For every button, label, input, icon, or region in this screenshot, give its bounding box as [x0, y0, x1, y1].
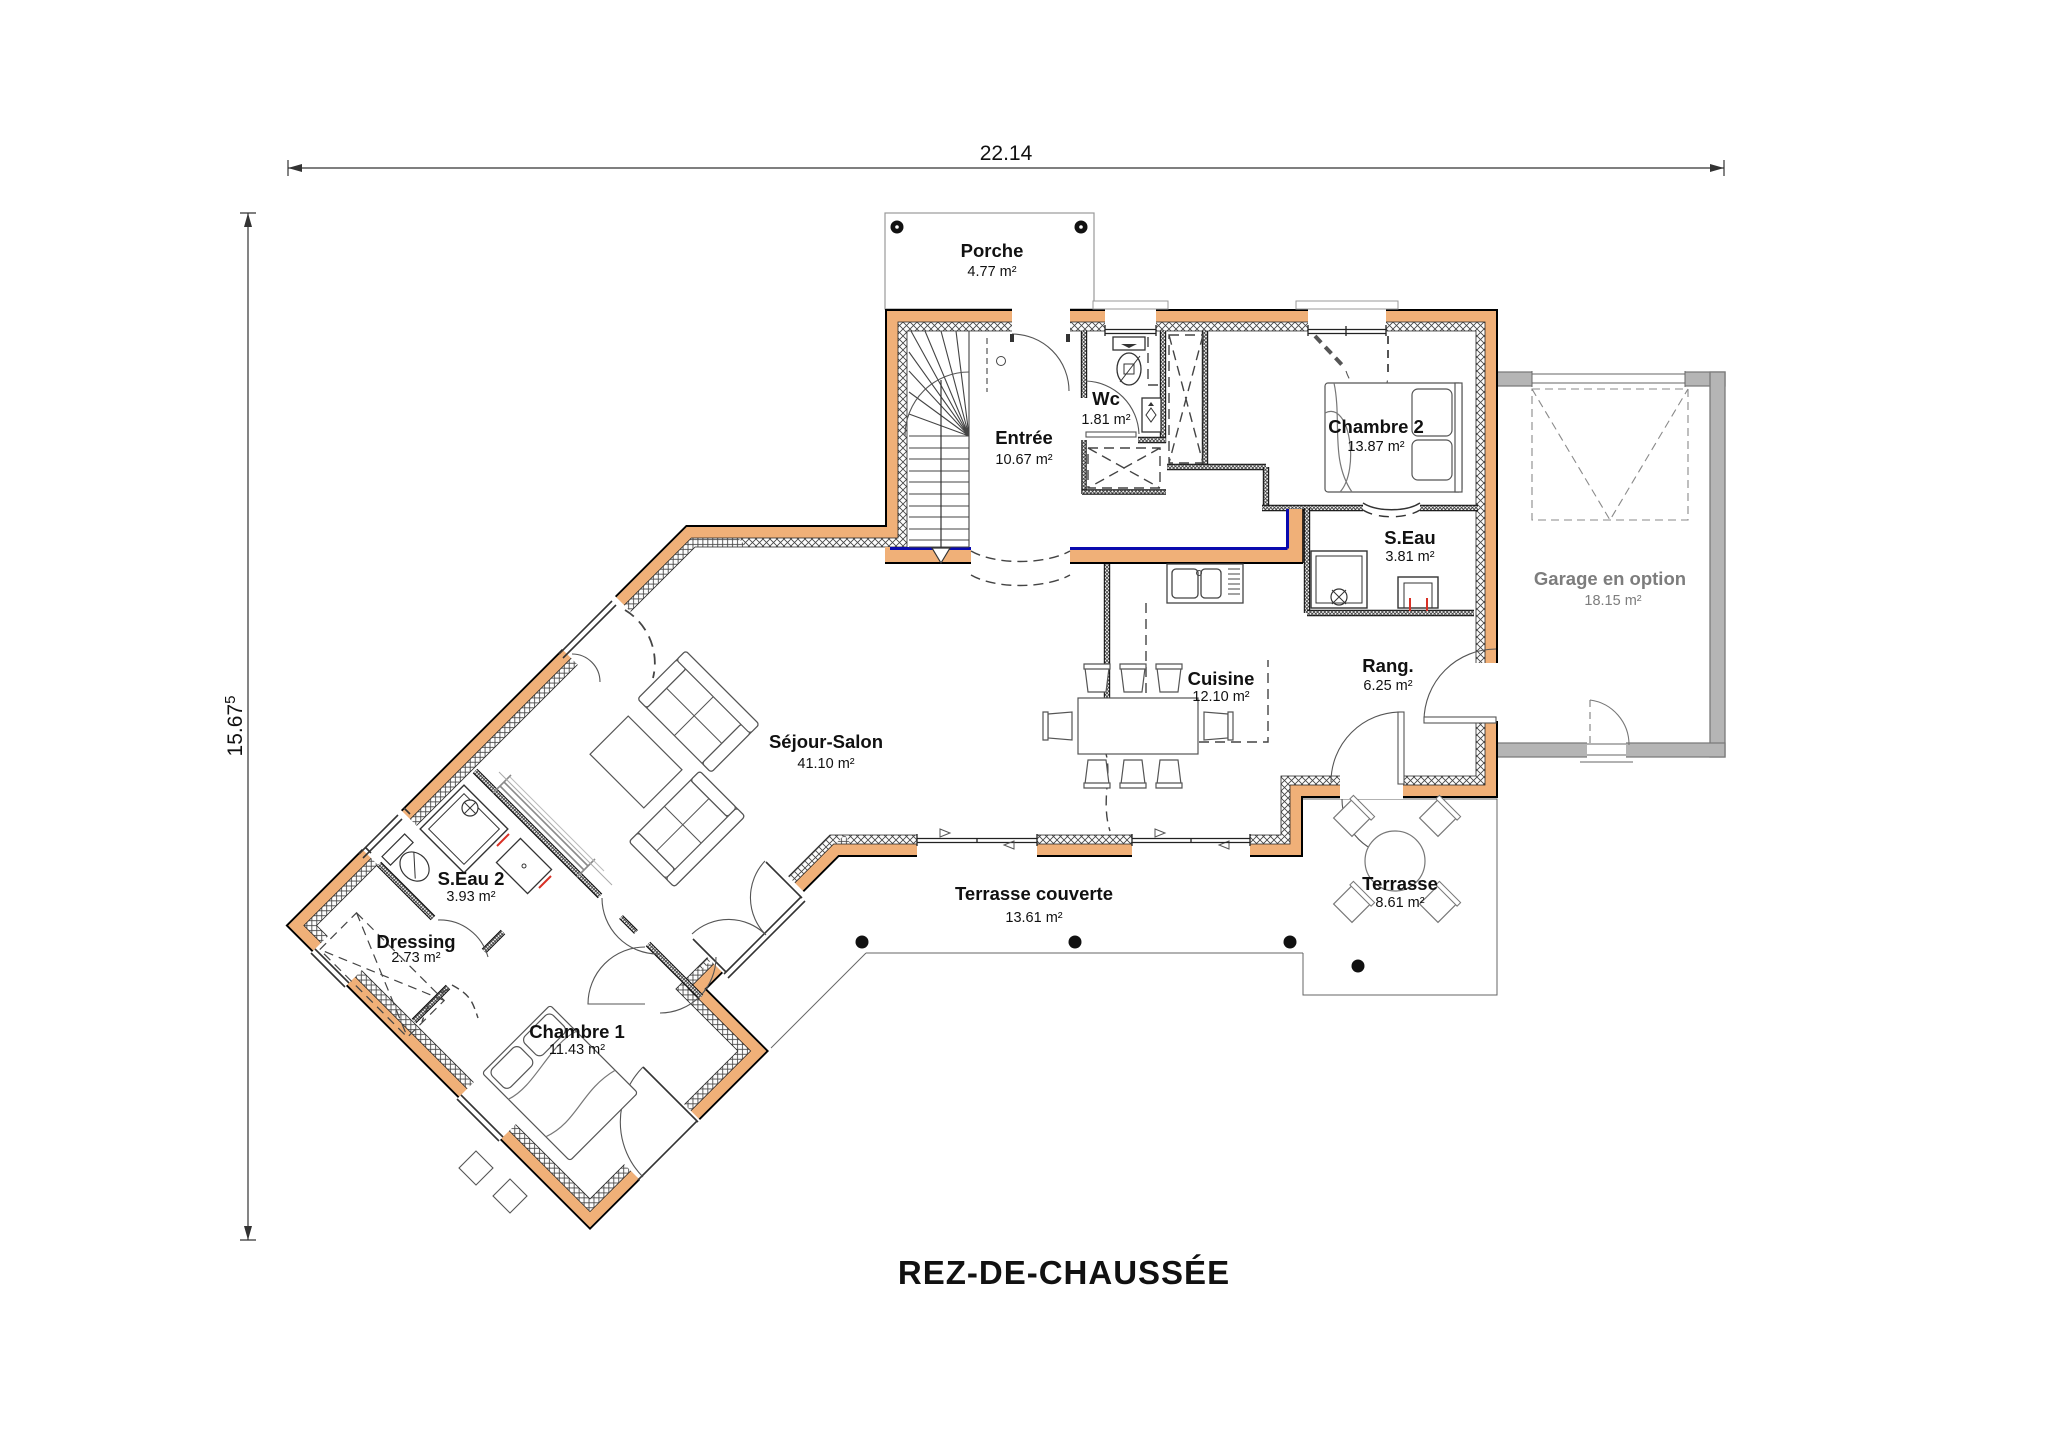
- svg-text:12.10 m²: 12.10 m²: [1192, 689, 1249, 705]
- svg-text:S.Eau: S.Eau: [1384, 527, 1435, 548]
- svg-text:13.87 m²: 13.87 m²: [1347, 439, 1404, 455]
- svg-text:Rang.: Rang.: [1362, 655, 1413, 676]
- svg-text:22.14: 22.14: [980, 142, 1033, 165]
- svg-text:Wc: Wc: [1092, 388, 1120, 409]
- svg-text:Entrée: Entrée: [995, 427, 1053, 448]
- svg-text:REZ-DE-CHAUSSÉE: REZ-DE-CHAUSSÉE: [898, 1254, 1230, 1291]
- svg-text:8.61 m²: 8.61 m²: [1375, 895, 1424, 911]
- svg-text:3.81 m²: 3.81 m²: [1385, 549, 1434, 565]
- svg-text:Cuisine: Cuisine: [1188, 668, 1255, 689]
- svg-text:11.43 m²: 11.43 m²: [549, 1042, 605, 1058]
- svg-text:Terrasse: Terrasse: [1362, 873, 1438, 894]
- svg-text:Chambre 2: Chambre 2: [1328, 416, 1424, 437]
- svg-text:6.25 m²: 6.25 m²: [1363, 678, 1412, 694]
- svg-text:3.93 m²: 3.93 m²: [446, 889, 495, 905]
- svg-text:2.73 m²: 2.73 m²: [391, 950, 440, 966]
- svg-text:Terrasse couverte: Terrasse couverte: [955, 883, 1113, 904]
- svg-text:15.675: 15.675: [222, 696, 247, 757]
- svg-text:1.81 m²: 1.81 m²: [1081, 412, 1130, 428]
- svg-text:Garage en option: Garage en option: [1534, 568, 1686, 589]
- svg-text:Chambre 1: Chambre 1: [529, 1021, 625, 1042]
- svg-text:S.Eau 2: S.Eau 2: [438, 868, 505, 889]
- svg-text:Porche: Porche: [961, 240, 1024, 261]
- svg-text:Dressing: Dressing: [376, 931, 455, 952]
- svg-text:Séjour-Salon: Séjour-Salon: [769, 731, 883, 752]
- svg-text:4.77 m²: 4.77 m²: [967, 264, 1016, 280]
- svg-text:41.10 m²: 41.10 m²: [797, 756, 854, 772]
- svg-text:13.61 m²: 13.61 m²: [1005, 910, 1062, 926]
- svg-text:18.15 m²: 18.15 m²: [1584, 593, 1641, 609]
- svg-text:10.67 m²: 10.67 m²: [995, 452, 1052, 468]
